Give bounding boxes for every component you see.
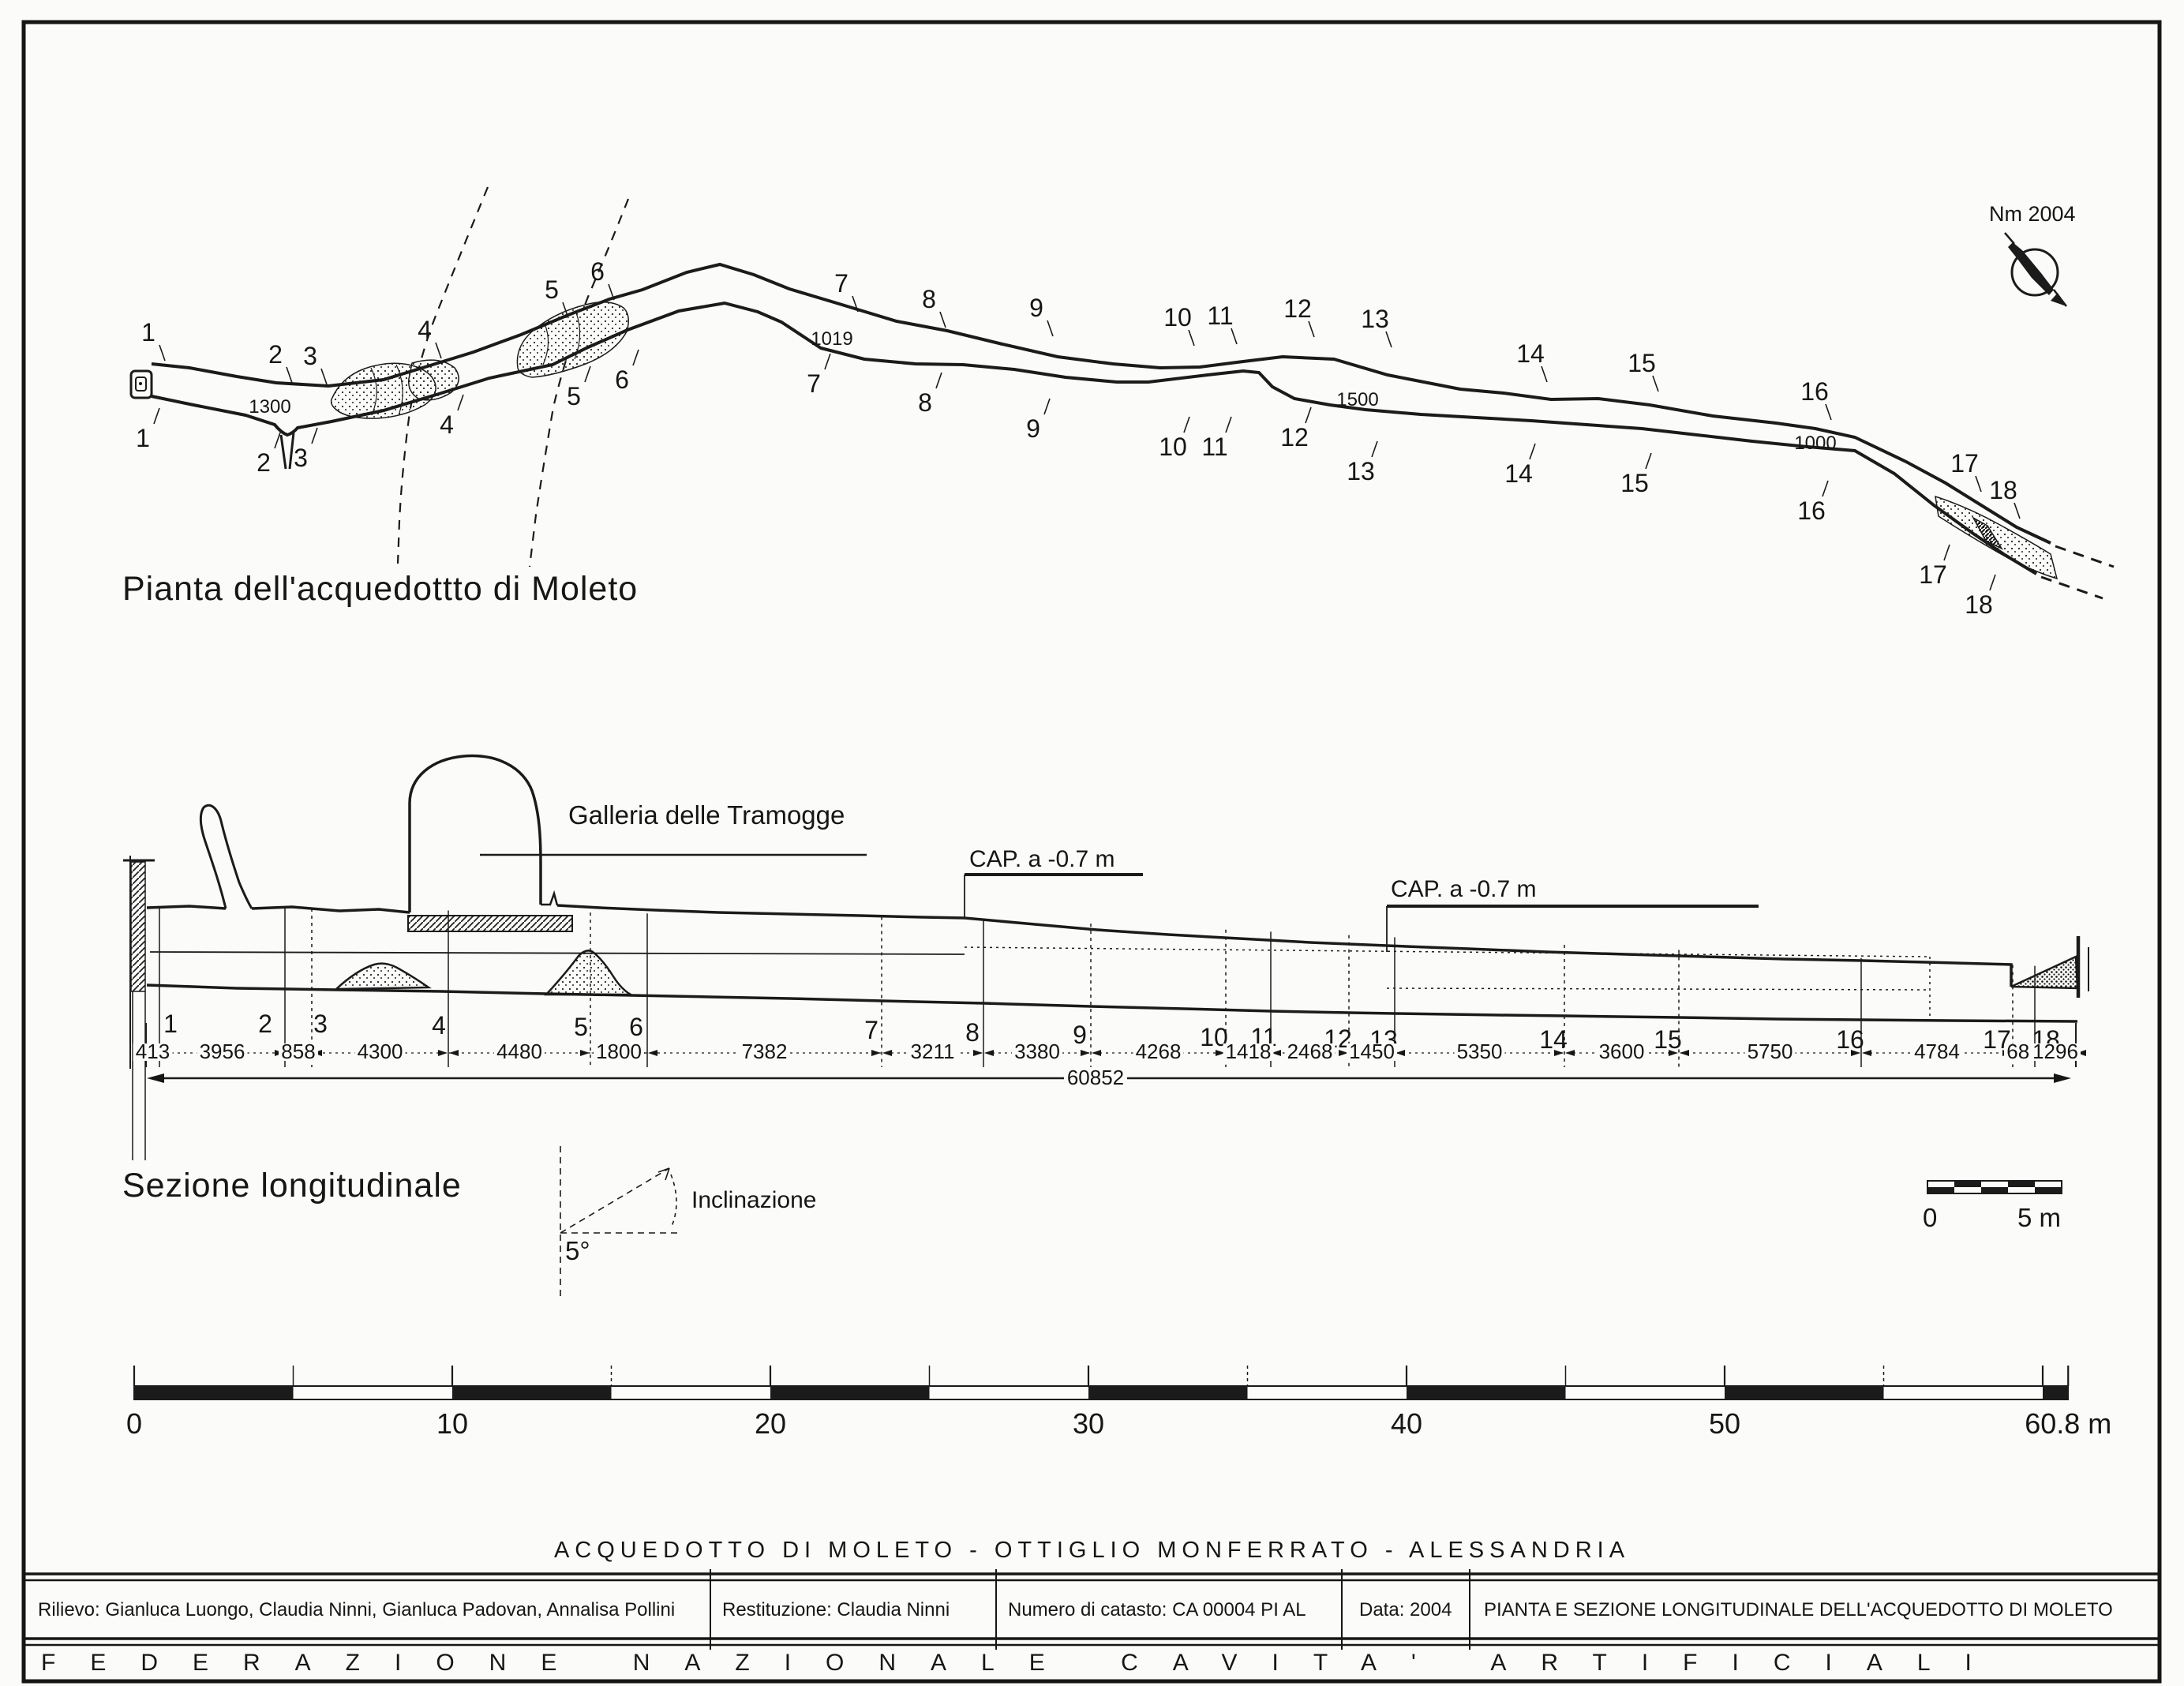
station-leader [436, 343, 441, 358]
small-scale-end: 5 m [2017, 1203, 2061, 1233]
section-station-label: 1 [163, 1010, 178, 1038]
dimension-value: 1450 [1349, 1040, 1395, 1063]
dimension-value: 7382 [742, 1040, 788, 1063]
compass-label: Nm 2004 [1989, 202, 2076, 227]
titleblock-rilievo: Rilievo: Gianluca Luongo, Claudia Ninni,… [38, 1599, 675, 1621]
small-scale-cell [1927, 1187, 1954, 1193]
dimension-value: 3380 [1014, 1040, 1060, 1063]
plan-station-label-bottom: 8 [918, 388, 932, 417]
station-leader [458, 395, 463, 410]
section-station-label: 5 [574, 1013, 588, 1041]
station-leader [1386, 332, 1392, 347]
long-scale-label: 10 [436, 1407, 468, 1440]
plan-station-label-bottom: 16 [1797, 496, 1826, 525]
titleblock-titolo: PIANTA E SEZIONE LONGITUDINALE DELL'ACQU… [1484, 1599, 2113, 1621]
dimension-value: 3956 [200, 1040, 245, 1063]
station-leader [1530, 444, 1535, 459]
section-station-label: 9 [1073, 1021, 1087, 1049]
section-station-label: 3 [313, 1010, 328, 1038]
plan-elevation-value: 1300 [249, 396, 290, 418]
plan-elevation-value: 1000 [1794, 433, 1836, 454]
plan-station-label-top: 17 [1950, 449, 1979, 478]
section-chimney [200, 805, 252, 909]
station-leader [1044, 399, 1050, 414]
scale-segment [1725, 1386, 1884, 1399]
titleblock-catasto: Numero di catasto: CA 00004 PI AL [1008, 1599, 1306, 1621]
dimension-value: 1800 [596, 1040, 642, 1063]
station-leader [275, 433, 280, 448]
section-station-label: 8 [965, 1018, 980, 1047]
dimension-value: 3600 [1599, 1040, 1645, 1063]
plan-station-label-top: 1 [141, 318, 155, 347]
plan-station-label-top: 10 [1163, 303, 1192, 332]
station-leader [159, 345, 165, 361]
station-leader [1653, 376, 1658, 392]
plan-station-label-top: 5 [545, 275, 559, 304]
section-station-label: 7 [864, 1016, 878, 1044]
plan-station-label-bottom: 4 [440, 410, 454, 439]
small-scale-start: 0 [1923, 1203, 1937, 1233]
station-leader [154, 408, 159, 424]
station-leader [1372, 441, 1377, 457]
plan-title: Pianta dell'acquedottto di Moleto [122, 570, 638, 609]
dimension-value: 4268 [1136, 1040, 1182, 1063]
plan-station-label-bottom: 11 [1201, 433, 1227, 461]
section-station-label: 14 [1539, 1025, 1568, 1054]
plan-station-label-bottom: 6 [615, 365, 629, 394]
station-leader [1822, 481, 1828, 496]
station-leader [1976, 476, 1981, 492]
plan-station-label-bottom: 9 [1026, 414, 1040, 443]
long-scale-label: 0 [126, 1407, 142, 1440]
plan-elevation-value: 1019 [811, 328, 852, 350]
plan-station-label-top: 2 [268, 340, 283, 369]
small-scale-cell [1981, 1187, 2008, 1193]
station-leader [633, 350, 639, 365]
north-arrow-icon [2005, 233, 2066, 306]
section-sediment-mound [546, 950, 631, 995]
total-dimension-value: 60852 [1067, 1066, 1124, 1089]
titleblock-data: Data: 2004 [1359, 1599, 1452, 1621]
section-station-label: 15 [1654, 1025, 1682, 1054]
scale-segment [2043, 1386, 2068, 1399]
cap-label-1: CAP. a -0.7 m [969, 846, 1115, 873]
station-leader [1646, 453, 1651, 469]
plan-station-label-top: 4 [418, 316, 432, 344]
plan-station-label-top: 12 [1283, 294, 1312, 323]
survey-drawing: 1234567891011121314151617181234567891011… [0, 0, 2184, 1686]
dimension-value: 5750 [1748, 1040, 1793, 1063]
section-station-label: 2 [258, 1010, 272, 1038]
dimension-value: 1418 [1226, 1040, 1272, 1063]
long-scale-end-label: 60.8 m [2025, 1407, 2111, 1440]
scale-segment [1407, 1386, 1566, 1399]
station-leader [1542, 366, 1547, 382]
small-scale-cell [2008, 1181, 2035, 1187]
plan-station-label-bottom: 1 [136, 424, 150, 452]
plan-side-passage [281, 433, 294, 469]
section-view [123, 756, 2088, 1296]
long-scale-label: 30 [1073, 1407, 1104, 1440]
titleblock-restituzione: Restituzione: Claudia Ninni [722, 1599, 950, 1621]
station-leader [1189, 330, 1194, 346]
station-leader [1944, 545, 1950, 560]
dimension-value: 4784 [1914, 1040, 1960, 1063]
plan-station-label-bottom: 13 [1347, 457, 1375, 485]
plan-station-label-top: 13 [1361, 305, 1389, 333]
station-leader [1184, 417, 1189, 433]
plan-elevation-value: 1500 [1336, 389, 1378, 410]
survey-sheet: 1234567891011121314151617181234567891011… [0, 0, 2184, 1686]
inclination-angle: 5° [565, 1236, 590, 1266]
section-end-fill [2011, 957, 2077, 988]
plan-station-label-bottom: 18 [1965, 590, 1993, 619]
dimension-value: 2468 [1287, 1040, 1333, 1063]
section-well-below [133, 991, 145, 1160]
dimension-value: 5350 [1457, 1040, 1503, 1063]
dimension-value: 858 [281, 1040, 315, 1063]
plan-station-label-top: 7 [834, 269, 849, 298]
dimension-value: 1296 [2032, 1040, 2078, 1063]
dimension-value: 4480 [496, 1040, 542, 1063]
plan-station-label-bottom: 7 [807, 369, 821, 398]
section-station-label: 6 [629, 1013, 643, 1041]
titleblock-footer: FEDERAZIONE NAZIONALE CAVITA' ARTIFICIAL… [41, 1650, 2006, 1677]
station-leader [1309, 321, 1314, 337]
section-station-label: 16 [1836, 1025, 1864, 1054]
station-leader [1231, 328, 1237, 344]
plan-station-label-bottom: 14 [1504, 459, 1533, 488]
inclination-symbol [560, 1146, 680, 1296]
plan-station-label-bottom: 10 [1159, 433, 1187, 461]
dimension-value: 3211 [911, 1040, 955, 1063]
station-leader [1226, 417, 1231, 433]
long-scale-label: 40 [1391, 1407, 1422, 1440]
section-channel-line [150, 952, 965, 954]
plan-station-label-bottom: 3 [294, 444, 308, 472]
scale-segment [134, 1386, 294, 1399]
small-scale-cell [2035, 1187, 2062, 1193]
station-leader [825, 354, 830, 369]
section-station-label: 4 [432, 1011, 446, 1040]
plan-tunnel-wall-upper [152, 264, 2051, 543]
scale-segment [1088, 1386, 1248, 1399]
section-sediment-mound [336, 964, 429, 989]
scale-segment [770, 1386, 930, 1399]
station-leader [940, 312, 946, 328]
dimension-value: 4300 [358, 1040, 403, 1063]
station-leader [321, 369, 327, 384]
station-leader [287, 367, 292, 383]
station-leader [1306, 407, 1311, 423]
plan-station-label-bottom: 17 [1919, 560, 1947, 589]
station-leader [1826, 404, 1831, 420]
plan-tunnel-interior [152, 264, 2051, 574]
plan-station-label-bottom: 2 [257, 448, 271, 477]
plan-station-label-bottom: 15 [1620, 469, 1649, 497]
plan-station-label-top: 18 [1989, 476, 2017, 504]
galleria-label: Galleria delle Tramogge [568, 800, 845, 830]
cap-label-2: CAP. a -0.7 m [1391, 876, 1537, 903]
plan-station-label-top: 6 [590, 257, 605, 286]
long-scale-label: 20 [755, 1407, 786, 1440]
small-scale-cell [1954, 1181, 1981, 1187]
station-leader [2014, 503, 2020, 519]
dimension-value: 413 [136, 1040, 170, 1063]
station-leader [1990, 575, 1995, 590]
plan-station-label-bottom: 5 [567, 382, 581, 410]
section-title: Sezione longitudinale [122, 1167, 462, 1205]
plan-station-label-top: 15 [1628, 349, 1656, 377]
scale-bars [134, 1181, 2068, 1399]
section-dome-floor-hatch [408, 916, 572, 931]
station-leader [312, 428, 317, 444]
plan-station-label-top: 9 [1029, 294, 1043, 322]
plan-station-label-top: 14 [1516, 339, 1545, 368]
station-leader [585, 366, 590, 382]
plan-station-label-top: 3 [303, 342, 317, 370]
titleblock-header: ACQUEDOTTO DI MOLETO - OTTIGLIO MONFERRA… [0, 1538, 2184, 1564]
inclination-label: Inclinazione [691, 1187, 816, 1214]
section-dome-galleria [410, 756, 541, 912]
station-leader [936, 373, 942, 388]
station-leader [1047, 320, 1053, 336]
plan-station-label-top: 16 [1800, 377, 1829, 406]
plan-station-label-top: 11 [1207, 302, 1233, 330]
plan-station-label-bottom: 12 [1280, 423, 1309, 451]
plan-station-label-top: 8 [922, 285, 936, 313]
long-scale-label: 50 [1709, 1407, 1740, 1440]
section-ceiling [147, 906, 226, 909]
section-entrance-wall [131, 862, 145, 991]
scale-segment [452, 1386, 612, 1399]
